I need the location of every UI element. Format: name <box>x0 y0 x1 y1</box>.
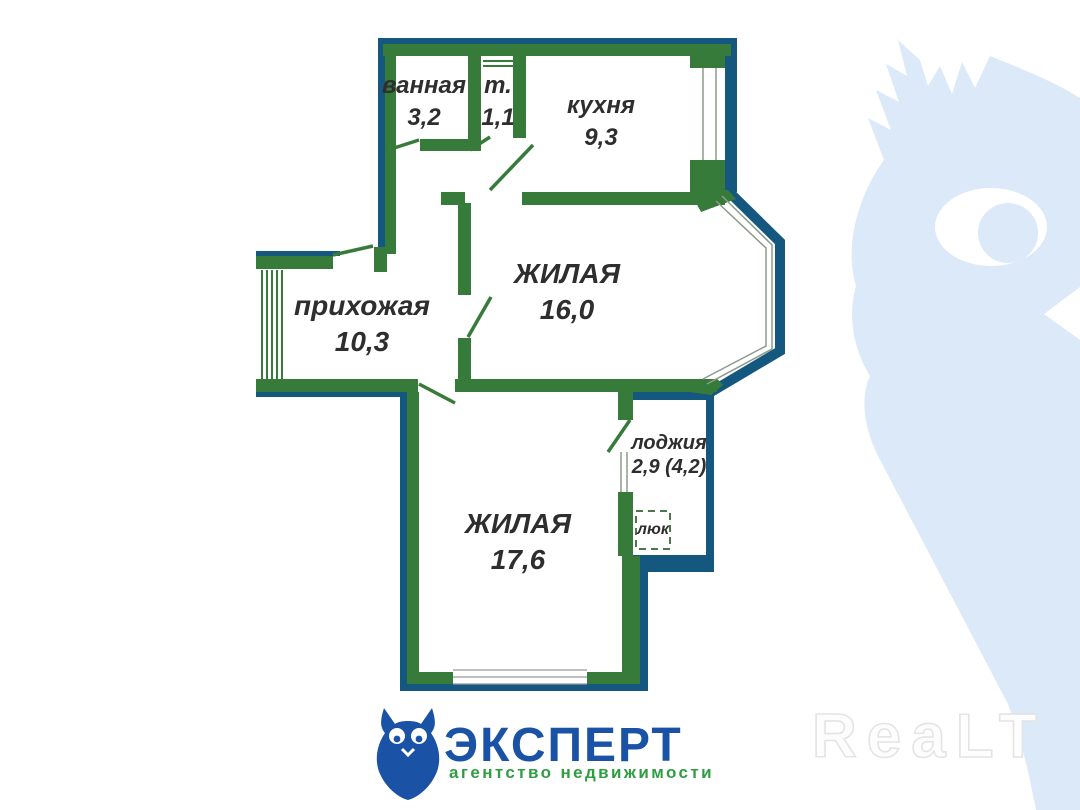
agency-tagline: агентство недвижимости <box>449 763 714 783</box>
kitchen-window <box>694 68 725 160</box>
room-name: т. <box>481 70 514 102</box>
room-area: 2,9 (4,2) <box>631 455 706 479</box>
owl-pupil <box>978 203 1038 263</box>
floorplan-drawing: ReaLT <box>0 0 1080 810</box>
room-label-loggia: лоджия 2,9 (4,2) <box>631 431 706 479</box>
room-name: кухня <box>567 90 635 122</box>
inner-walls <box>256 44 736 684</box>
room-label-toilet: т. 1,1 <box>481 70 514 134</box>
outer-wall-edges <box>256 38 737 691</box>
room-label-bathroom: ванная 3,2 <box>382 70 466 134</box>
living1-door <box>468 297 491 337</box>
agency-owl-logo-icon <box>368 700 448 800</box>
living2-door <box>419 384 455 403</box>
room-name: ЖИЛАЯ <box>465 506 571 542</box>
room-name: прихожая <box>294 288 430 324</box>
bay-window-pane <box>703 201 766 379</box>
room-area: 16,0 <box>514 292 620 328</box>
floorplan-page: ReaLT ванная 3,2 т. 1,1 кухня 9,3 ЖИЛАЯ … <box>0 0 1080 810</box>
owl-watermark-icon <box>852 40 1080 810</box>
room-area: 10,3 <box>294 324 430 360</box>
room-area: 1,1 <box>481 102 514 134</box>
room-area: 3,2 <box>382 102 466 134</box>
vent-shaft-lines <box>483 61 513 66</box>
room-name: ЖИЛАЯ <box>514 256 620 292</box>
room-name: лоджия <box>631 431 706 455</box>
room-label-living2: ЖИЛАЯ 17,6 <box>465 506 571 578</box>
room-area: 9,3 <box>567 122 635 154</box>
room-label-hallway: прихожая 10,3 <box>294 288 430 360</box>
entry-hatch-marks <box>262 270 282 386</box>
room-label-kitchen: кухня 9,3 <box>567 90 635 154</box>
entry-door <box>333 246 373 255</box>
kitchen-door <box>490 145 533 190</box>
room-area: 17,6 <box>465 542 571 578</box>
room-name: люк <box>637 521 669 539</box>
room-name: ванная <box>382 70 466 102</box>
realt-watermark: ReaLT <box>812 702 1047 771</box>
loggia-window <box>617 452 631 492</box>
room-label-hatch: люк <box>637 521 669 539</box>
loggia-door <box>608 420 630 452</box>
room-label-living1: ЖИЛАЯ 16,0 <box>514 256 620 328</box>
